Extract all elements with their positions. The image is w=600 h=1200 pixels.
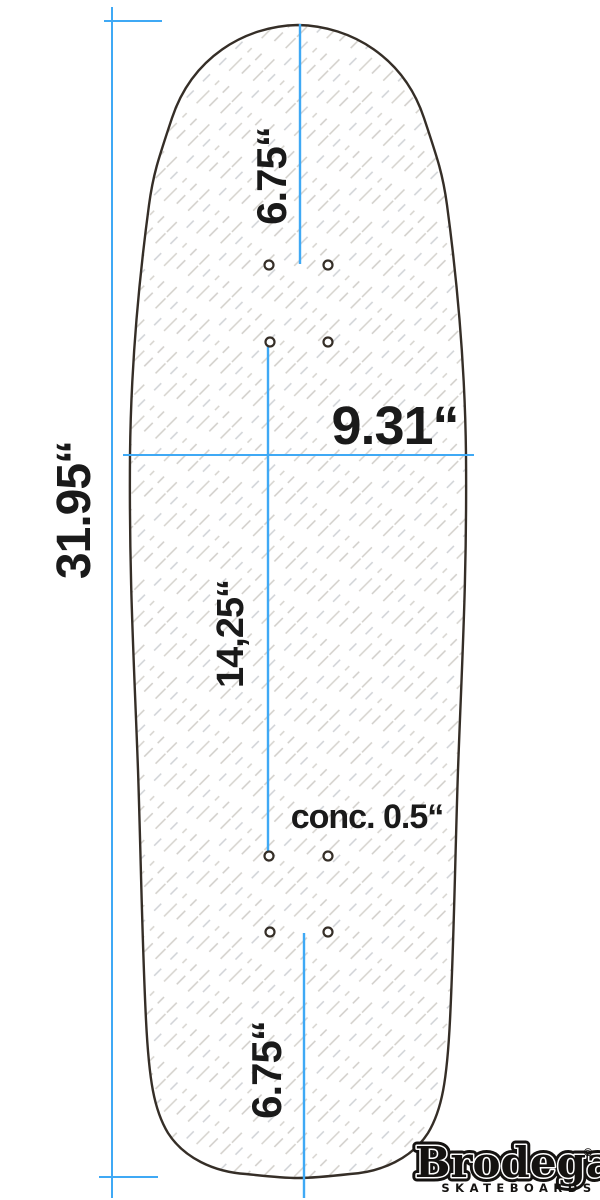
width-label: 9.31“ [331, 396, 458, 456]
brand-wordmark: Brodega [415, 1138, 600, 1187]
registered-trademark-icon: ® [583, 1146, 594, 1159]
nose-truck-hole [324, 338, 333, 347]
diagram-canvas: 31.95“ 9.31“ 6.75“ 14,25“ conc. 0.5“ 6.7… [0, 0, 600, 1200]
deck-spec-diagram: 31.95“ 9.31“ 6.75“ 14,25“ conc. 0.5“ 6.7… [0, 0, 600, 1200]
nose-truck-hole [324, 261, 333, 270]
nose-truck-hole [265, 261, 274, 270]
tail-truck-hole [324, 928, 333, 937]
wheelbase-label: 14,25“ [210, 580, 252, 688]
deck-hatch-texture [130, 25, 466, 1178]
tail-truck-hole [265, 852, 274, 861]
tail-offset-label: 6.75“ [243, 1021, 290, 1119]
tail-truck-hole [266, 928, 275, 937]
total-length-label: 31.95“ [48, 441, 101, 579]
concave-label: conc. 0.5“ [291, 798, 444, 836]
tail-truck-hole [324, 852, 333, 861]
brodega-logo: Brodega Brodega ® SKATEBOARDS [415, 1138, 600, 1195]
nose-truck-hole [266, 338, 275, 347]
brand-subtitle: SKATEBOARDS [441, 1181, 596, 1195]
nose-offset-label: 6.75“ [248, 127, 295, 225]
